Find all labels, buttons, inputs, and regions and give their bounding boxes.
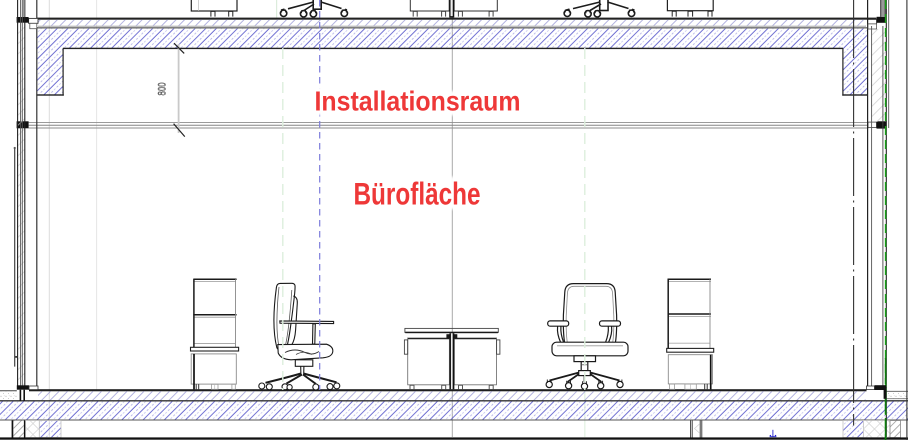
svg-text:Bürofläche: Bürofläche	[354, 177, 481, 212]
svg-text:Installationsraum: Installationsraum	[315, 85, 521, 116]
